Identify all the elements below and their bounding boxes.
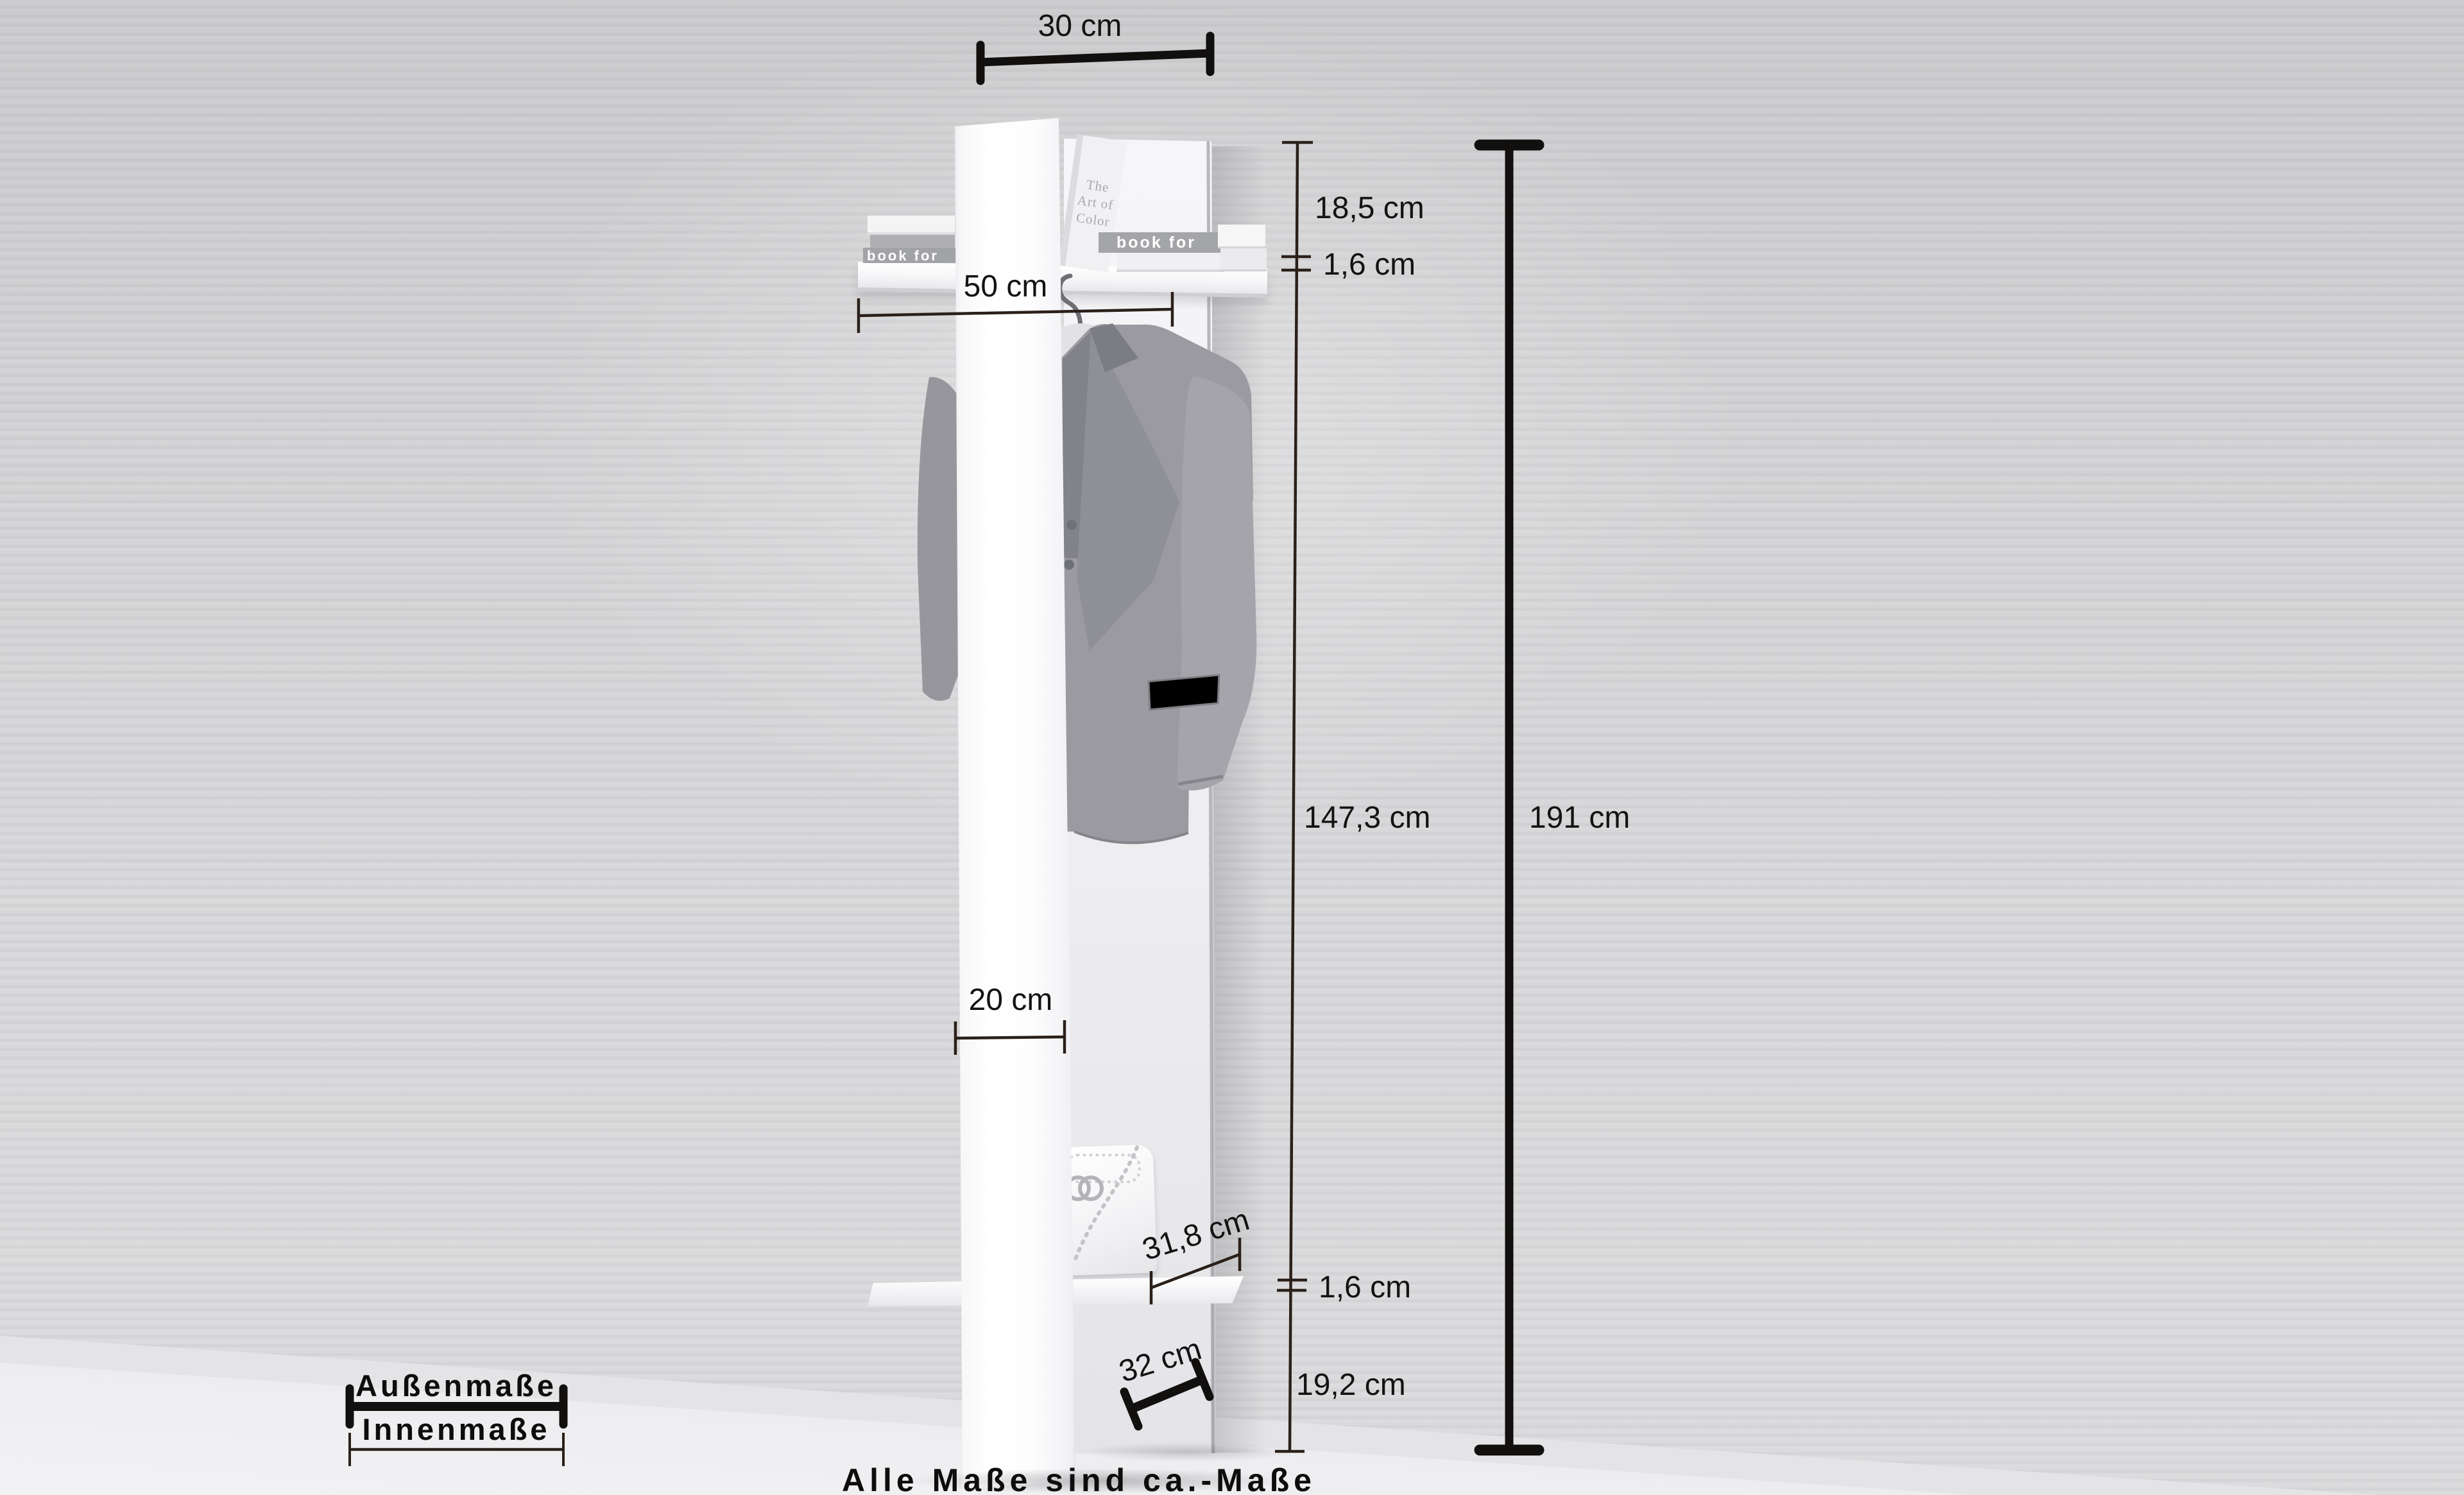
- dimension-lines: [0, 0, 2464, 1495]
- label-board-top: 1,6 cm: [1323, 249, 1416, 281]
- label-bottom-section: 19,2 cm: [1296, 1369, 1406, 1401]
- label-total-height: 191 cm: [1529, 802, 1630, 834]
- label-width-top: 30 cm: [1000, 10, 1160, 42]
- dim-line-191cm: [1480, 145, 1539, 1450]
- label-middle-section: 147,3 cm: [1304, 802, 1430, 834]
- dim-line-20cm: [955, 1020, 1065, 1055]
- legend-inner-label: Innenmaße: [344, 1412, 569, 1447]
- note-approximate-measures: Alle Maße sind ca.-Maße: [842, 1462, 1240, 1495]
- product-dimension-diagram: book for as The Art of Color book for as: [0, 0, 2464, 1495]
- label-shelf-width: 50 cm: [925, 271, 1086, 303]
- label-panel-width: 20 cm: [930, 984, 1091, 1016]
- legend-outer-label: Außenmaße: [344, 1368, 569, 1403]
- label-board-bottom: 1,6 cm: [1319, 1272, 1411, 1304]
- label-top-section: 18,5 cm: [1315, 192, 1425, 225]
- dim-line-inner-vertical: [1275, 142, 1313, 1451]
